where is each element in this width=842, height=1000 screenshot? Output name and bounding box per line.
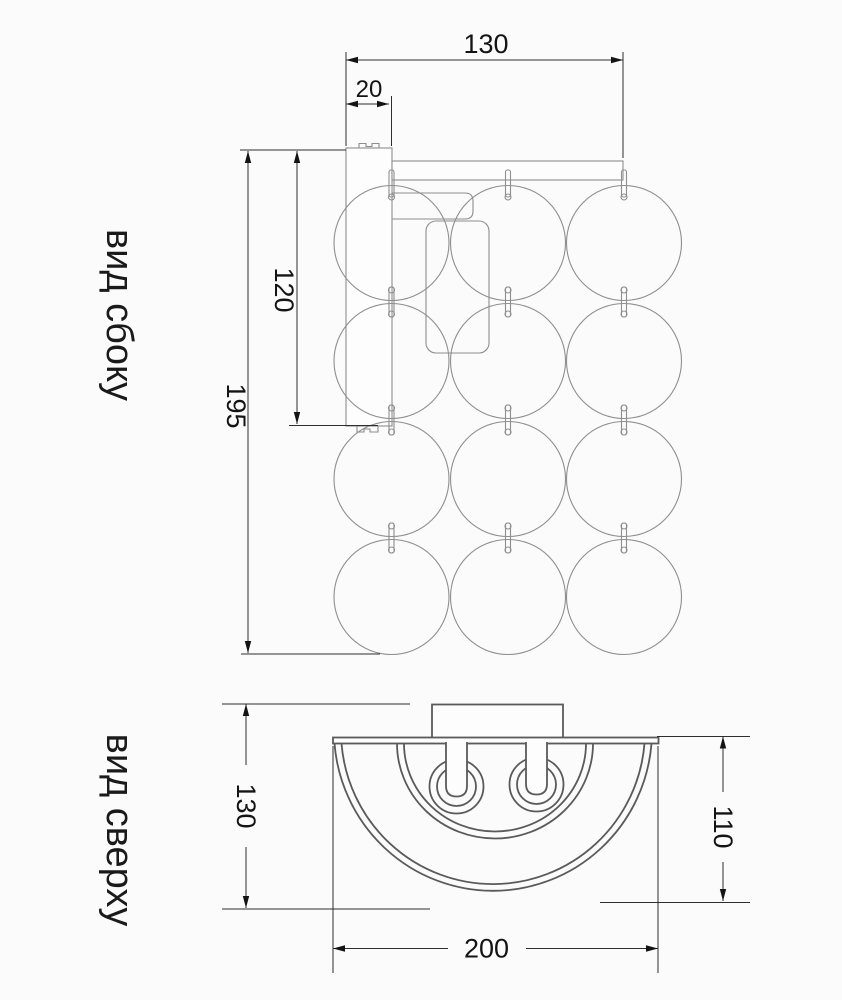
glass-sphere [451,186,566,301]
arrowhead [294,412,300,424]
dimension-value: 20 [356,76,383,103]
connector-row [389,405,628,435]
dimension-top-width: 200 [333,746,658,973]
glass-sphere [567,540,682,655]
arrowhead [720,889,726,901]
connector-row [389,523,628,553]
dimension-side-width: 130 [346,29,623,158]
rod [622,287,627,317]
arrowhead [294,151,300,163]
dimension-side-offset: 20 [346,76,392,146]
dimension-value: 130 [231,783,261,828]
shade-outer-arc [335,744,652,891]
glass-sphere [567,186,682,301]
arrowhead [245,641,251,653]
back-bar [333,738,659,744]
arrowhead [720,737,726,749]
side-view-label: вид сбоку [98,229,140,401]
side-view-dimensions: 130 20 195 120 [221,29,623,654]
mount-box [432,705,563,739]
glass-sphere [567,304,682,419]
rod [506,523,511,553]
socket-stem [446,742,467,797]
dimension-value: 110 [708,805,738,848]
arrowhead [243,896,249,908]
top-view-drawing [333,705,659,891]
connector-row [389,287,628,317]
shade-inner-arc [342,744,645,885]
arrowhead [346,57,358,63]
rod [622,405,627,435]
rod [389,523,394,553]
arrowhead [611,57,623,63]
side-view-drawing [334,144,682,655]
rod [506,287,511,317]
wall-plate-top-tab [359,144,379,149]
dimension-value: 195 [221,383,251,428]
glass-sphere [451,422,566,537]
arrowhead [245,151,251,163]
drawing-canvas: 130 20 195 120 вид сбоку [0,0,842,1000]
dimension-value: 200 [464,934,509,964]
dimension-top-depth: 130 [222,704,430,909]
socket-left [430,742,484,814]
dimension-value: 130 [463,29,508,59]
socket-right [510,742,564,812]
socket-stem [526,742,547,795]
arrowhead [333,945,345,951]
dome-inner-arc [404,744,586,832]
dimension-value: 120 [269,267,299,312]
top-view-label: вид сверху [98,734,140,927]
rod [506,405,511,435]
glass-sphere [567,422,682,537]
sphere-connector-rods [389,287,628,553]
rod [622,523,627,553]
lamp-technical-drawing: 130 20 195 120 вид сбоку [0,0,842,1000]
arrowhead [646,945,658,951]
glass-sphere [334,540,449,655]
bracket-arm [392,193,473,219]
arrowhead [243,704,249,716]
glass-sphere [451,540,566,655]
glass-sphere [451,304,566,419]
glass-sphere [334,422,449,537]
dimension-top-shade-depth: 110 [600,737,750,903]
